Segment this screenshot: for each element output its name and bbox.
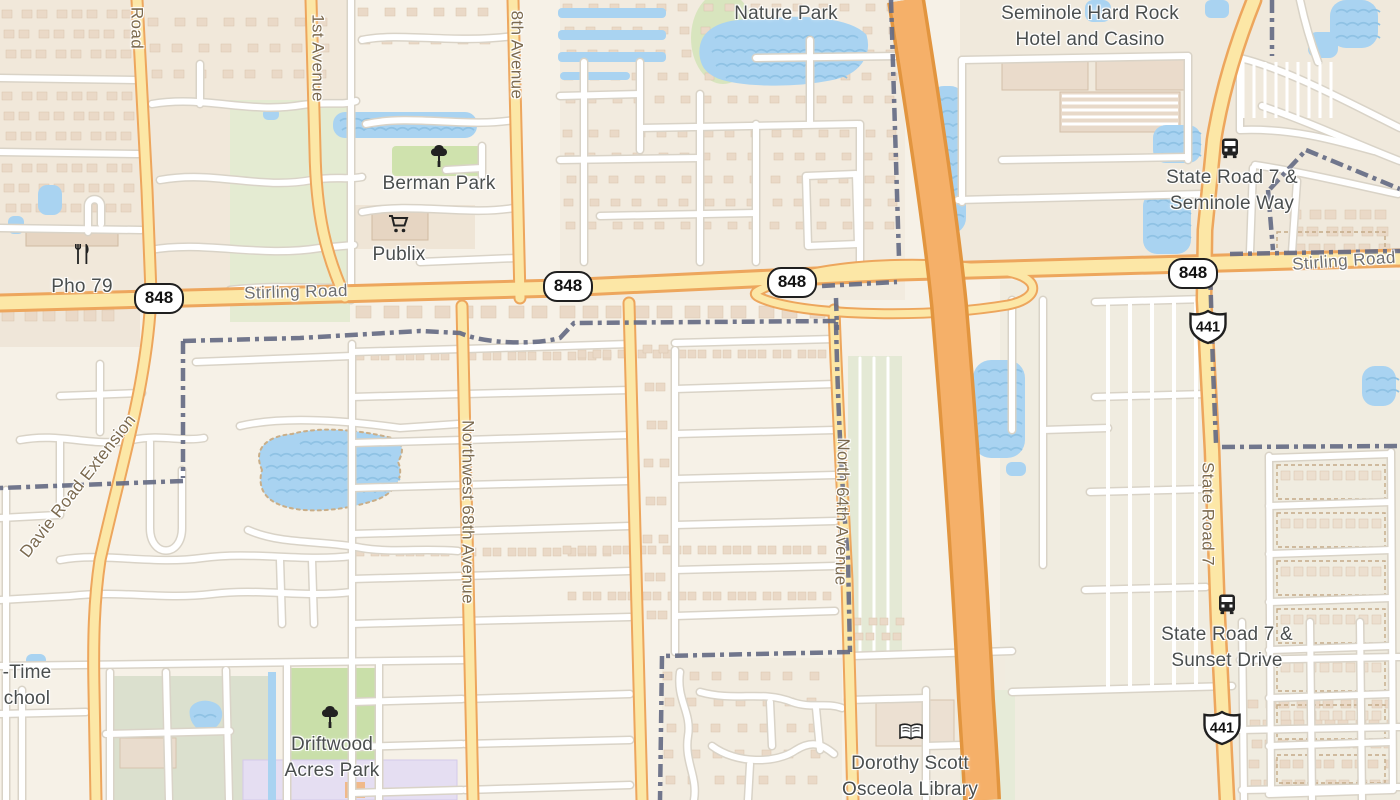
map-label-nature-park[interactable]: Nature Park [734, 1, 838, 27]
restaurant-icon[interactable] [74, 243, 92, 265]
bus-icon[interactable] [1217, 593, 1237, 615]
route-shield-848: 848 [1168, 258, 1218, 289]
map-label-state-road-7: State Road 7 [1196, 462, 1219, 566]
map-label-state-road-7-seminole-way[interactable]: State Road 7 &Seminole Way [1166, 165, 1298, 217]
map-label-seminole-hard-rock[interactable]: Seminole Hard RockHotel and Casino [1001, 1, 1179, 53]
svg-text:441: 441 [1196, 320, 1220, 336]
map-label-1st-avenue: 1st Avenue [306, 14, 329, 102]
map-label-publix[interactable]: Publix [373, 242, 426, 268]
map-label-8th-avenue: 8th Avenue [505, 11, 528, 100]
map-overlay: Nature ParkSeminole Hard RockHotel and C… [0, 0, 1400, 800]
map-label-davie-road: Road [125, 7, 148, 49]
map-label-berman-park[interactable]: Berman Park [382, 171, 495, 197]
bus-icon[interactable] [1220, 137, 1240, 159]
map-label-dorothy-scott-osceola-library[interactable]: Dorothy ScottOsceola Library [842, 751, 978, 800]
map-label-northwest-68th-avenue: Northwest 68th Avenue [456, 420, 479, 604]
svg-text:441: 441 [1210, 721, 1234, 737]
route-shield-848: 848 [543, 271, 593, 302]
map-label-stirling-road-east: Stirling Road [1291, 246, 1396, 277]
map-canvas[interactable]: Nature ParkSeminole Hard RockHotel and C… [0, 0, 1400, 800]
map-label-state-road-7-sunset-drive[interactable]: State Road 7 &Sunset Drive [1161, 622, 1293, 674]
book-icon[interactable] [898, 723, 924, 741]
map-label-driftwood-acres-park[interactable]: DriftwoodAcres Park [285, 732, 380, 784]
route-shield-848: 848 [767, 267, 817, 298]
map-label-north-64th-avenue: North 64th Avenue [829, 438, 855, 586]
us-route-shield-441: 441 [1202, 710, 1242, 746]
map-label-school-label-clipped[interactable]: -Timechool [3, 660, 52, 712]
shopping-cart-icon[interactable] [388, 214, 410, 234]
map-label-davie-road-extension: Davie Road Extension [15, 409, 142, 562]
route-shield-848: 848 [134, 283, 184, 314]
map-label-stirling-road-west: Stirling Road [244, 279, 348, 305]
tree-icon[interactable] [319, 705, 341, 729]
us-route-shield-441: 441 [1188, 309, 1228, 345]
map-label-pho-79[interactable]: Pho 79 [51, 274, 112, 300]
tree-icon[interactable] [428, 144, 450, 168]
